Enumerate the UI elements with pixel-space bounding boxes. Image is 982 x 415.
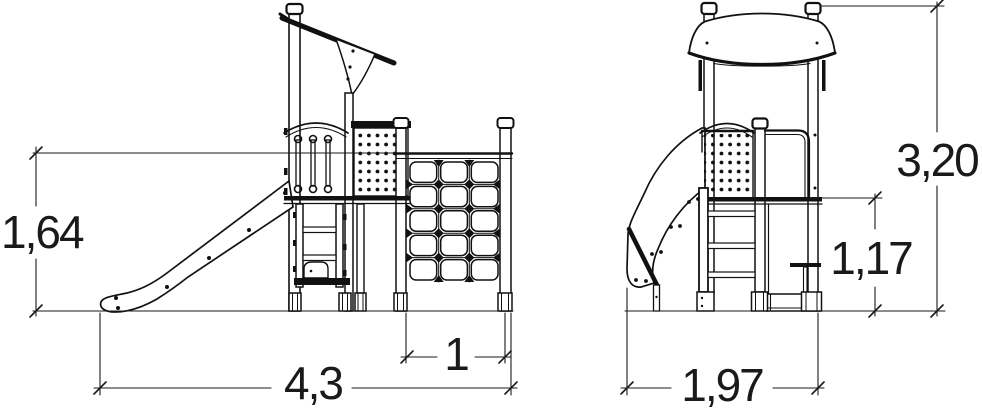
barrier-rail (765, 131, 817, 198)
centre-post (753, 119, 768, 293)
dimension-net-width: 1 (444, 328, 468, 380)
front-elevation-view (627, 3, 835, 311)
dimension-overall-width: 1,97 (681, 359, 763, 411)
ground-anchors-side (289, 293, 512, 311)
elevation-drawing-svg: 1,64 4,3 1 3,20 1,17 1,97 (0, 0, 982, 415)
dimension-overall-length: 4,3 (284, 357, 342, 409)
dimension-labels: 1,64 4,3 1 3,20 1,17 1,97 (1, 134, 978, 411)
side-elevation-view (101, 4, 514, 312)
net-posts (394, 118, 514, 311)
climbing-panel-front (700, 124, 754, 198)
net-connectors (406, 160, 500, 282)
dimension-rail-height: 1,64 (1, 206, 84, 258)
playground-technical-drawing: 1,64 4,3 1 3,20 1,17 1,97 (0, 0, 982, 415)
dimension-platform-height: 1,17 (830, 232, 912, 284)
dimension-overall-height: 3,20 (896, 134, 978, 186)
ground-anchors-front (697, 292, 822, 311)
climbing-net (406, 160, 500, 282)
slide-front (627, 128, 705, 311)
slide-side (101, 181, 293, 312)
